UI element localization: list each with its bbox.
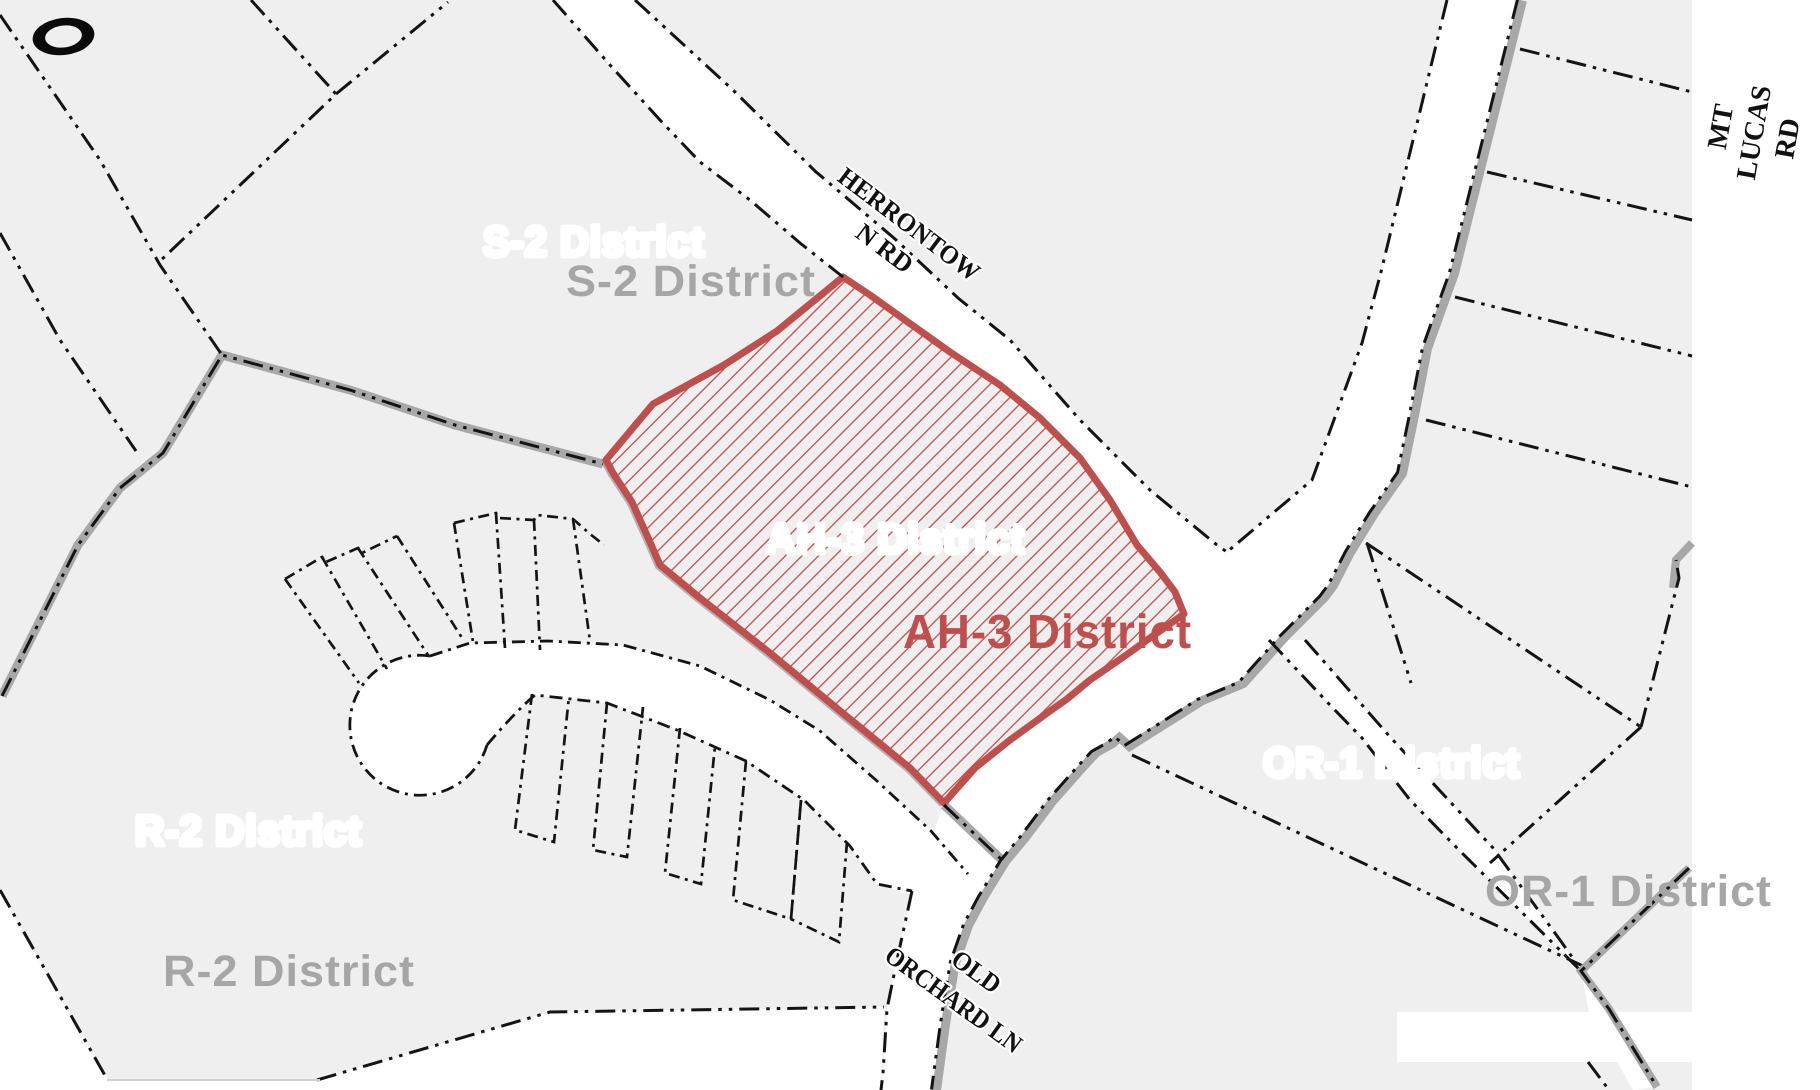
svg-text:R-2 District: R-2 District bbox=[135, 807, 362, 854]
svg-text:AH-3 District: AH-3 District bbox=[903, 606, 1192, 659]
svg-text:R-2 District: R-2 District bbox=[163, 947, 415, 996]
svg-text:AH-3 District: AH-3 District bbox=[766, 515, 1025, 562]
svg-text:OR-1 District: OR-1 District bbox=[1485, 867, 1772, 916]
svg-text:OR-1 District: OR-1 District bbox=[1263, 739, 1520, 786]
svg-text:S-2 District: S-2 District bbox=[566, 257, 816, 306]
